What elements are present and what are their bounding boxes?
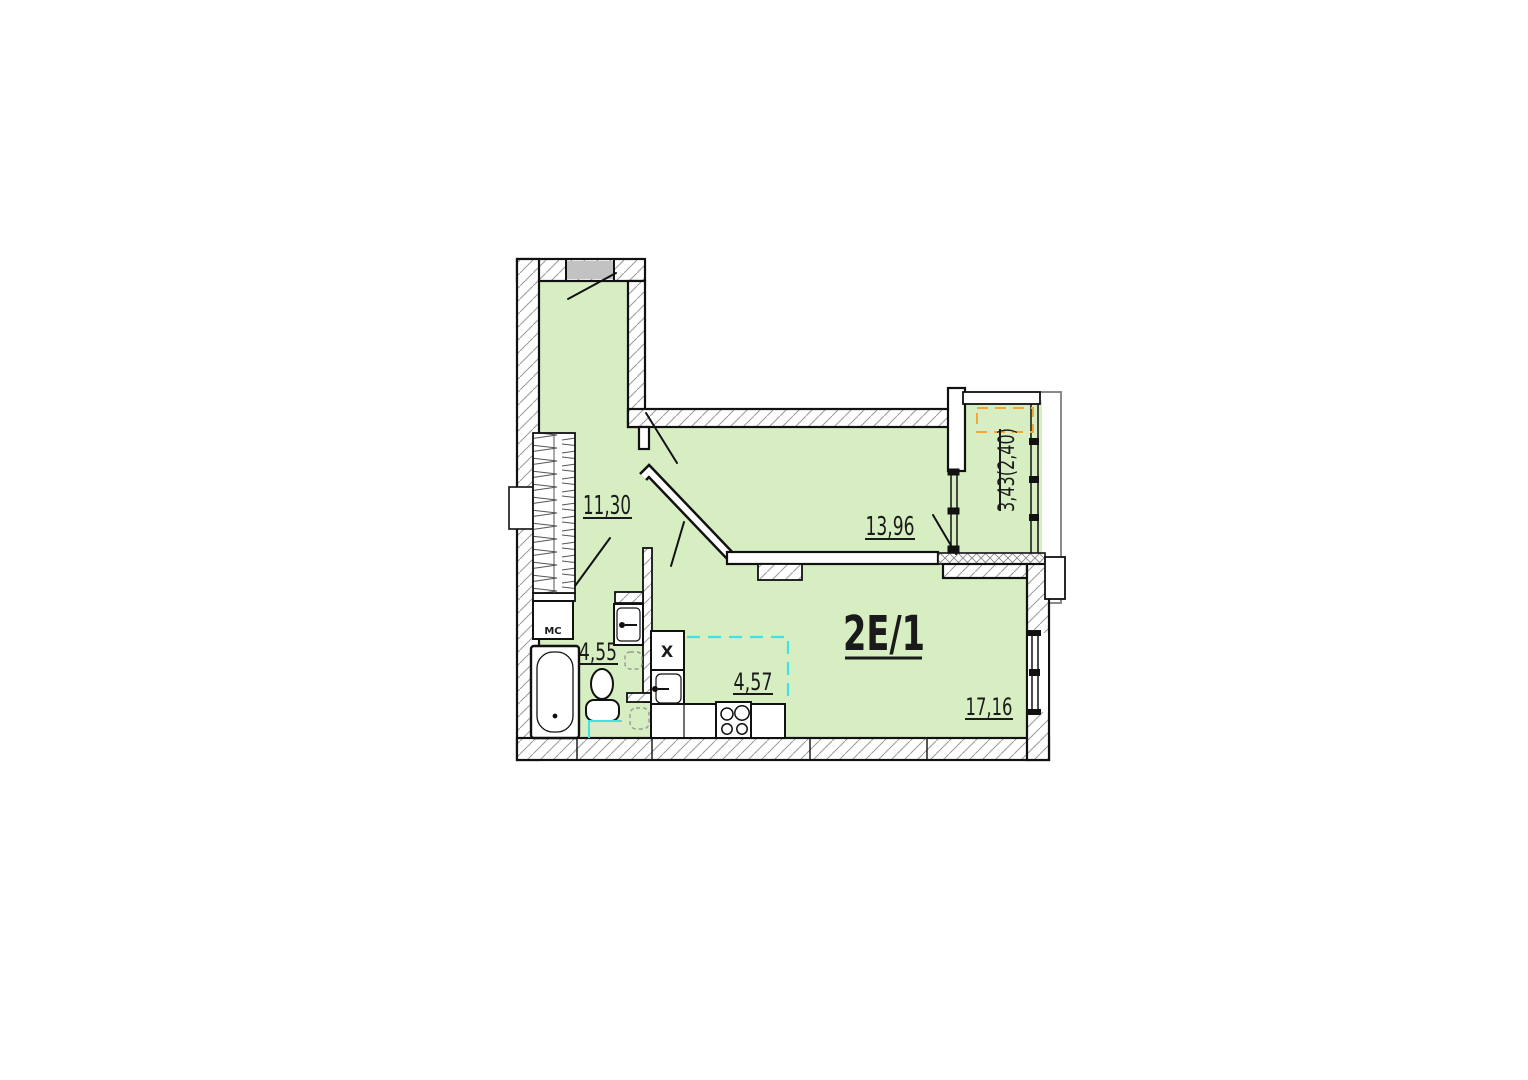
- floor-plan-svg: МС Х: [0, 0, 1528, 1080]
- label-balcony-area: 3,43(2,40): [995, 428, 1020, 512]
- washing-machine-label: МС: [544, 626, 561, 637]
- living-window: [1028, 630, 1048, 715]
- unit-type-label: 2Е/1: [843, 606, 925, 662]
- wall-niche: [509, 487, 533, 529]
- kitchen-counter: [651, 702, 785, 738]
- bathroom-sink: [614, 604, 643, 645]
- wall-stub-below: [758, 564, 802, 580]
- entry-door: [566, 261, 614, 279]
- label-room-area: 13,96: [866, 512, 915, 542]
- bathtub: [531, 646, 579, 738]
- label-living-area: 17,16: [966, 693, 1013, 721]
- wardrobe: [533, 433, 575, 593]
- wall-bottom: [517, 738, 1049, 760]
- label-bathroom-area: 4,55: [579, 638, 617, 666]
- kitchen-sink: [651, 670, 684, 707]
- door-jamb-stub: [639, 427, 649, 449]
- wall-room-bottom: [727, 552, 938, 564]
- wall-balcony-sill: [938, 553, 1045, 564]
- wall-bath-top: [533, 593, 575, 601]
- label-kitchen-area: 4,57: [734, 668, 773, 696]
- wall-bath-stub: [615, 592, 643, 603]
- fridge-label: Х: [661, 642, 674, 661]
- wall-bath-jog: [627, 693, 652, 702]
- wall-room-top: [628, 409, 950, 427]
- wall-hallway-right: [628, 281, 645, 427]
- neighbour-slab: [1045, 557, 1065, 599]
- floor-plan: МС Х: [0, 0, 1528, 1080]
- label-hallway-area: 11,30: [583, 491, 631, 521]
- wall-balcony-top: [963, 392, 1040, 404]
- wall-living-topright: [943, 564, 1027, 578]
